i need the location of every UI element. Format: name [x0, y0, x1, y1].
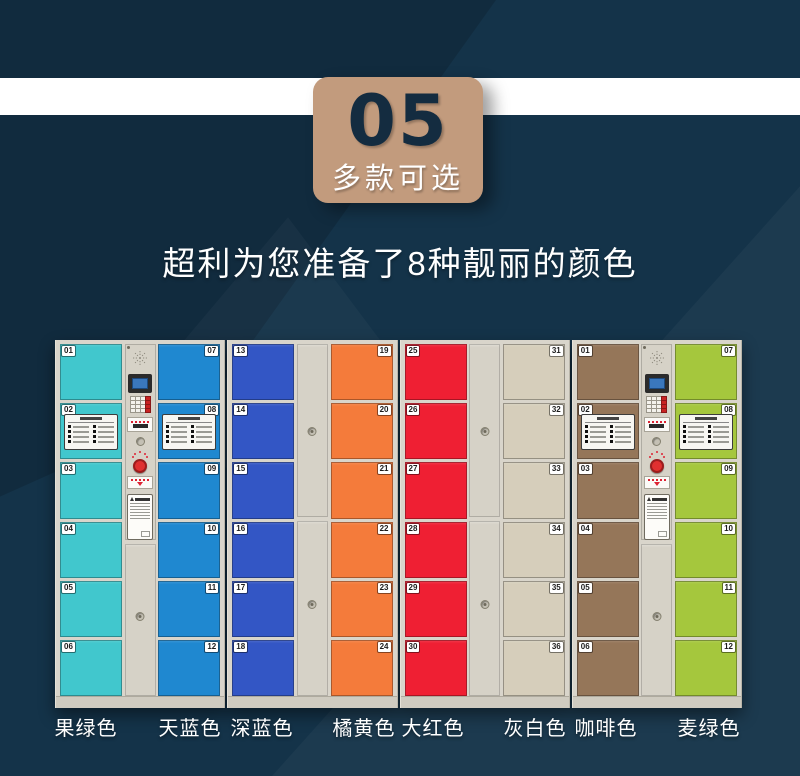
barcode-scanner-label — [127, 417, 153, 432]
step-bullet-icon — [708, 440, 711, 443]
door-number-plate: 06 — [579, 642, 592, 652]
label-red-text — [648, 421, 666, 423]
keypad-key — [136, 405, 140, 408]
door-number-plate: 22 — [378, 524, 391, 534]
label-red-text — [131, 479, 149, 481]
locker-door: 30 — [405, 640, 467, 696]
cabinet-base — [56, 696, 224, 708]
step-bullet-icon — [683, 425, 686, 428]
door-number-plate: 18 — [234, 642, 247, 652]
notice-text-line — [647, 515, 667, 516]
sticker-step-item — [708, 425, 729, 428]
step-text-line — [615, 441, 631, 443]
step-bullet-icon — [191, 430, 194, 433]
locker-door: 19 — [331, 344, 393, 400]
locker-door: 04 — [60, 522, 122, 578]
warning-triangle-icon — [647, 497, 651, 501]
step-bullet-icon — [610, 430, 613, 433]
speaker-grille-icon — [648, 349, 666, 372]
sticker-step-item — [683, 440, 704, 443]
locker-door: 03 — [60, 462, 122, 518]
notice-text-line — [130, 503, 150, 504]
sticker-step-item — [610, 435, 631, 438]
sticker-step-item — [191, 425, 212, 428]
sticker-title-bar — [178, 417, 200, 420]
step-text-line — [196, 426, 212, 428]
keypad-red-key — [146, 405, 150, 408]
sticker-divider — [68, 422, 114, 423]
step-text-line — [688, 431, 704, 433]
step-bullet-icon — [68, 440, 71, 443]
locker-door: 07 — [675, 344, 737, 400]
keyhole-icon — [136, 612, 145, 621]
step-text-line — [196, 436, 212, 438]
step-bullet-icon — [68, 430, 71, 433]
sticker-step-item — [585, 430, 606, 433]
red-arrow-icon — [654, 482, 660, 486]
sticker-step-item — [68, 430, 89, 433]
side-column — [469, 344, 500, 696]
sticker-step-item — [708, 440, 729, 443]
step-text-line — [688, 436, 704, 438]
step-text-line — [590, 431, 606, 433]
sticker-step-item — [708, 435, 729, 438]
sticker-step-item — [708, 430, 729, 433]
notice-text-line — [130, 506, 150, 507]
sticker-step-item — [93, 435, 114, 438]
door-column-left: 010203040506 — [577, 344, 639, 696]
door-column-right: 070809101112 — [158, 344, 220, 696]
indicator-dots-icon — [132, 451, 148, 458]
step-bullet-icon — [93, 425, 96, 428]
step-bullet-icon — [585, 440, 588, 443]
door-number-plate: 31 — [550, 346, 563, 356]
door-column-right: 192021222324 — [331, 344, 393, 696]
notice-text-line — [647, 512, 667, 513]
door-number-plate: 16 — [234, 524, 247, 534]
keypad-key — [141, 409, 145, 412]
door-number-plate: 26 — [407, 405, 420, 415]
locker-door: 25 — [405, 344, 467, 400]
sticker-step-item — [68, 440, 89, 443]
keypad-key — [657, 397, 661, 400]
locker-door: 17 — [232, 581, 294, 637]
label-red-text — [648, 479, 666, 481]
step-bullet-icon — [708, 430, 711, 433]
color-label: 深蓝色 — [231, 712, 294, 741]
locker-door: 02 — [577, 403, 639, 459]
door-number-plate: 32 — [550, 405, 563, 415]
door-column-right: 070809101112 — [675, 344, 737, 696]
step-text-line — [590, 436, 606, 438]
notice-text-line — [130, 515, 150, 516]
keypad-key — [131, 401, 135, 404]
keypad-key — [657, 401, 661, 404]
step-bullet-icon — [166, 425, 169, 428]
step-bullet-icon — [68, 435, 71, 438]
cabinet-body: 010203040506070809101112 — [60, 344, 220, 696]
instruction-sticker — [162, 414, 216, 450]
step-text-line — [98, 441, 114, 443]
locker-door: 05 — [60, 581, 122, 637]
door-number-plate: 20 — [378, 405, 391, 415]
lcd-screen — [128, 374, 152, 393]
keypad-key — [647, 409, 651, 412]
step-text-line — [98, 436, 114, 438]
sticker-step-item — [166, 425, 187, 428]
door-number-plate: 15 — [234, 464, 247, 474]
sticker-step-item — [610, 425, 631, 428]
sticker-title-bar — [695, 417, 717, 420]
service-door — [641, 544, 672, 696]
notice-title-bar — [652, 498, 667, 501]
keypad-red-key — [662, 401, 666, 404]
emergency-button — [133, 459, 147, 473]
locker-door: 31 — [503, 344, 565, 400]
door-number-plate: 05 — [62, 583, 75, 593]
door-number-plate: 36 — [550, 642, 563, 652]
step-bullet-icon — [191, 425, 194, 428]
sticker-divider — [166, 422, 212, 423]
step-bullet-icon — [708, 425, 711, 428]
locker-door: 34 — [503, 522, 565, 578]
locker-door: 33 — [503, 462, 565, 518]
door-number-plate: 07 — [722, 346, 735, 356]
locker-door: 09 — [675, 462, 737, 518]
locker-door: 11 — [158, 581, 220, 637]
lcd-screen-glass — [649, 378, 665, 389]
keyhole-icon — [136, 437, 145, 446]
keyhole-icon — [308, 427, 317, 436]
step-bullet-icon — [166, 440, 169, 443]
sticker-step-item — [610, 440, 631, 443]
locker-door: 09 — [158, 462, 220, 518]
headline-text: 超利为您准备了8种靓丽的颜色 — [0, 237, 800, 285]
step-text-line — [615, 426, 631, 428]
notice-stamp-box — [141, 531, 150, 537]
step-text-line — [615, 431, 631, 433]
door-column-left: 252627282930 — [405, 344, 467, 696]
locker-door: 08 — [675, 403, 737, 459]
keypad-red-key — [146, 401, 150, 404]
sticker-step-item — [68, 425, 89, 428]
color-label: 果绿色 — [55, 712, 118, 741]
speaker-grille-icon — [131, 349, 149, 372]
locker-door: 11 — [675, 581, 737, 637]
keypad — [647, 397, 666, 412]
badge-subtitle: 多款可选 — [332, 164, 464, 194]
step-text-line — [713, 441, 729, 443]
warning-label — [644, 476, 670, 489]
emergency-button — [650, 459, 664, 473]
notice-stamp-box — [658, 531, 667, 537]
step-text-line — [98, 426, 114, 428]
locker-door: 03 — [577, 462, 639, 518]
locker-door: 12 — [675, 640, 737, 696]
step-text-line — [171, 436, 187, 438]
sticker-step-item — [166, 440, 187, 443]
door-number-plate: 21 — [378, 464, 391, 474]
locker-door: 13 — [232, 344, 294, 400]
keypad-red-key — [146, 397, 150, 400]
door-number-plate: 28 — [407, 524, 420, 534]
step-text-line — [171, 431, 187, 433]
keypad-key — [131, 397, 135, 400]
cabinet-body: 252627282930313233343536 — [405, 344, 565, 696]
keypad-key — [136, 401, 140, 404]
door-number-plate: 33 — [550, 464, 563, 474]
step-text-line — [196, 431, 212, 433]
scanner-slot — [133, 424, 148, 428]
step-text-line — [713, 431, 729, 433]
door-number-plate: 10 — [205, 524, 218, 534]
step-text-line — [196, 441, 212, 443]
step-bullet-icon — [93, 435, 96, 438]
sticker-step-item — [93, 425, 114, 428]
cabinet-body: 131415161718192021222324 — [232, 344, 392, 696]
keypad-key — [652, 397, 656, 400]
locker-door: 12 — [158, 640, 220, 696]
keypad — [131, 397, 150, 412]
locker-door: 16 — [232, 522, 294, 578]
keypad-key — [141, 397, 145, 400]
locker-door: 06 — [577, 640, 639, 696]
sticker-step-item — [191, 435, 212, 438]
door-number-plate: 07 — [205, 346, 218, 356]
door-number-plate: 19 — [378, 346, 391, 356]
keypad-key — [652, 405, 656, 408]
keypad-red-key — [662, 405, 666, 408]
sticker-divider — [585, 422, 631, 423]
door-column-left: 131415161718 — [232, 344, 294, 696]
door-number-plate: 23 — [378, 583, 391, 593]
keyhole-icon — [652, 612, 661, 621]
door-number-plate: 12 — [205, 642, 218, 652]
step-text-line — [713, 426, 729, 428]
label-red-text — [131, 421, 149, 423]
control-column — [641, 344, 672, 696]
notice-text-line — [647, 518, 667, 519]
cabinet-base — [228, 696, 396, 708]
step-bullet-icon — [166, 435, 169, 438]
locker-cabinet: 252627282930313233343536 — [400, 340, 570, 708]
notice-title — [130, 497, 150, 501]
step-text-line — [615, 436, 631, 438]
locker-door: 15 — [232, 462, 294, 518]
door-number-plate: 03 — [579, 464, 592, 474]
keypad-key — [657, 409, 661, 412]
color-label: 咖啡色 — [575, 712, 638, 741]
section-number: 05 — [347, 79, 448, 163]
cabinet-base — [401, 696, 569, 708]
locker-door: 27 — [405, 462, 467, 518]
step-text-line — [73, 431, 89, 433]
door-number-plate: 29 — [407, 583, 420, 593]
door-number-plate: 35 — [550, 583, 563, 593]
keypad-red-key — [662, 397, 666, 400]
step-bullet-icon — [191, 440, 194, 443]
keypad-red-key — [662, 409, 666, 412]
keypad-key — [652, 401, 656, 404]
warning-triangle-icon — [130, 497, 134, 501]
notice-text-line — [130, 518, 150, 519]
locker-door: 36 — [503, 640, 565, 696]
keypad-red-key — [146, 409, 150, 412]
promo-banner: 05 多款可选 超利为您准备了8种靓丽的颜色 01020304050607080… — [0, 0, 800, 776]
red-arrow-icon — [137, 482, 143, 486]
keyhole-icon — [652, 437, 661, 446]
locker-door: 14 — [232, 403, 294, 459]
locker-door: 23 — [331, 581, 393, 637]
instruction-sticker — [581, 414, 635, 450]
sticker-step-item — [683, 425, 704, 428]
step-bullet-icon — [68, 425, 71, 428]
keypad-key — [647, 401, 651, 404]
keypad-key — [657, 405, 661, 408]
notice-card — [644, 494, 670, 540]
sticker-title-bar — [597, 417, 619, 420]
keypad-key — [131, 405, 135, 408]
sticker-steps — [683, 425, 729, 443]
keyhole-icon — [480, 600, 489, 609]
sticker-title-bar — [80, 417, 102, 420]
locker-door: 22 — [331, 522, 393, 578]
door-number-plate: 01 — [579, 346, 592, 356]
instruction-sticker — [64, 414, 118, 450]
keypad-key — [647, 405, 651, 408]
locker-door: 07 — [158, 344, 220, 400]
door-number-plate: 30 — [407, 642, 420, 652]
step-bullet-icon — [610, 425, 613, 428]
sticker-steps — [68, 425, 114, 443]
service-door — [297, 521, 328, 696]
step-text-line — [171, 426, 187, 428]
sticker-step-item — [166, 435, 187, 438]
locker-door: 01 — [577, 344, 639, 400]
locker-door: 21 — [331, 462, 393, 518]
notice-title — [647, 497, 667, 501]
service-door — [297, 344, 328, 517]
locker-cabinet: 010203040506070809101112 — [55, 340, 225, 708]
sticker-step-item — [68, 435, 89, 438]
service-door — [469, 344, 500, 517]
door-number-plate: 14 — [234, 405, 247, 415]
locker-door: 20 — [331, 403, 393, 459]
step-text-line — [98, 431, 114, 433]
door-number-plate: 17 — [234, 583, 247, 593]
step-text-line — [73, 441, 89, 443]
keypad-key — [141, 405, 145, 408]
locker-cabinet: 010203040506070809101112 — [572, 340, 742, 708]
locker-door: 06 — [60, 640, 122, 696]
locker-door: 08 — [158, 403, 220, 459]
door-number-plate: 09 — [722, 464, 735, 474]
instruction-sticker — [679, 414, 733, 450]
sticker-step-item — [585, 440, 606, 443]
sticker-step-item — [191, 430, 212, 433]
door-column-right: 313233343536 — [503, 344, 565, 696]
locker-door: 04 — [577, 522, 639, 578]
door-number-plate: 12 — [722, 642, 735, 652]
notice-text-line — [647, 503, 667, 504]
door-number-plate: 06 — [62, 642, 75, 652]
color-label: 橘黄色 — [333, 712, 396, 741]
keypad-key — [647, 397, 651, 400]
notice-text-line — [130, 509, 150, 510]
service-door — [469, 521, 500, 696]
door-number-plate: 34 — [550, 524, 563, 534]
locker-door: 32 — [503, 403, 565, 459]
section-number-badge: 05 多款可选 — [313, 77, 483, 203]
side-column — [297, 344, 328, 696]
lockers: 0102030405060708091011121314151617181920… — [55, 340, 742, 708]
step-bullet-icon — [585, 425, 588, 428]
locker-door: 35 — [503, 581, 565, 637]
door-number-plate: 09 — [205, 464, 218, 474]
step-bullet-icon — [93, 440, 96, 443]
sticker-step-item — [610, 430, 631, 433]
color-label: 麦绿色 — [678, 712, 741, 741]
keypad-key — [136, 397, 140, 400]
door-number-plate: 03 — [62, 464, 75, 474]
step-bullet-icon — [708, 435, 711, 438]
sticker-divider — [683, 422, 729, 423]
color-label: 灰白色 — [504, 712, 567, 741]
color-label: 大红色 — [402, 712, 465, 741]
step-text-line — [73, 436, 89, 438]
indicator-dots-icon — [649, 451, 665, 458]
warning-label — [127, 476, 153, 489]
door-column-left: 010203040506 — [60, 344, 122, 696]
keypad-key — [652, 409, 656, 412]
keypad-key — [131, 409, 135, 412]
locker-door: 05 — [577, 581, 639, 637]
locker-door: 10 — [158, 522, 220, 578]
locker-cabinet: 131415161718192021222324 — [227, 340, 397, 708]
cabinet-base — [573, 696, 741, 708]
door-number-plate: 24 — [378, 642, 391, 652]
locker-door: 28 — [405, 522, 467, 578]
notice-text-line — [647, 506, 667, 507]
door-number-plate: 25 — [407, 346, 420, 356]
door-number-plate: 11 — [206, 583, 218, 593]
locker-door: 01 — [60, 344, 122, 400]
door-number-plate: 04 — [579, 524, 592, 534]
lcd-screen — [645, 374, 669, 393]
step-text-line — [713, 436, 729, 438]
sticker-step-item — [191, 440, 212, 443]
step-bullet-icon — [610, 440, 613, 443]
door-number-plate: 05 — [579, 583, 592, 593]
keyhole-icon — [308, 600, 317, 609]
step-text-line — [171, 441, 187, 443]
step-bullet-icon — [191, 435, 194, 438]
sticker-step-item — [585, 425, 606, 428]
step-bullet-icon — [166, 430, 169, 433]
sticker-step-item — [683, 435, 704, 438]
sticker-step-item — [93, 440, 114, 443]
step-bullet-icon — [585, 435, 588, 438]
step-bullet-icon — [610, 435, 613, 438]
keypad-key — [136, 409, 140, 412]
locker-door: 29 — [405, 581, 467, 637]
locker-door: 24 — [331, 640, 393, 696]
step-bullet-icon — [683, 430, 686, 433]
step-text-line — [688, 426, 704, 428]
keyhole-icon — [480, 427, 489, 436]
step-text-line — [688, 441, 704, 443]
scanner-slot — [649, 424, 664, 428]
